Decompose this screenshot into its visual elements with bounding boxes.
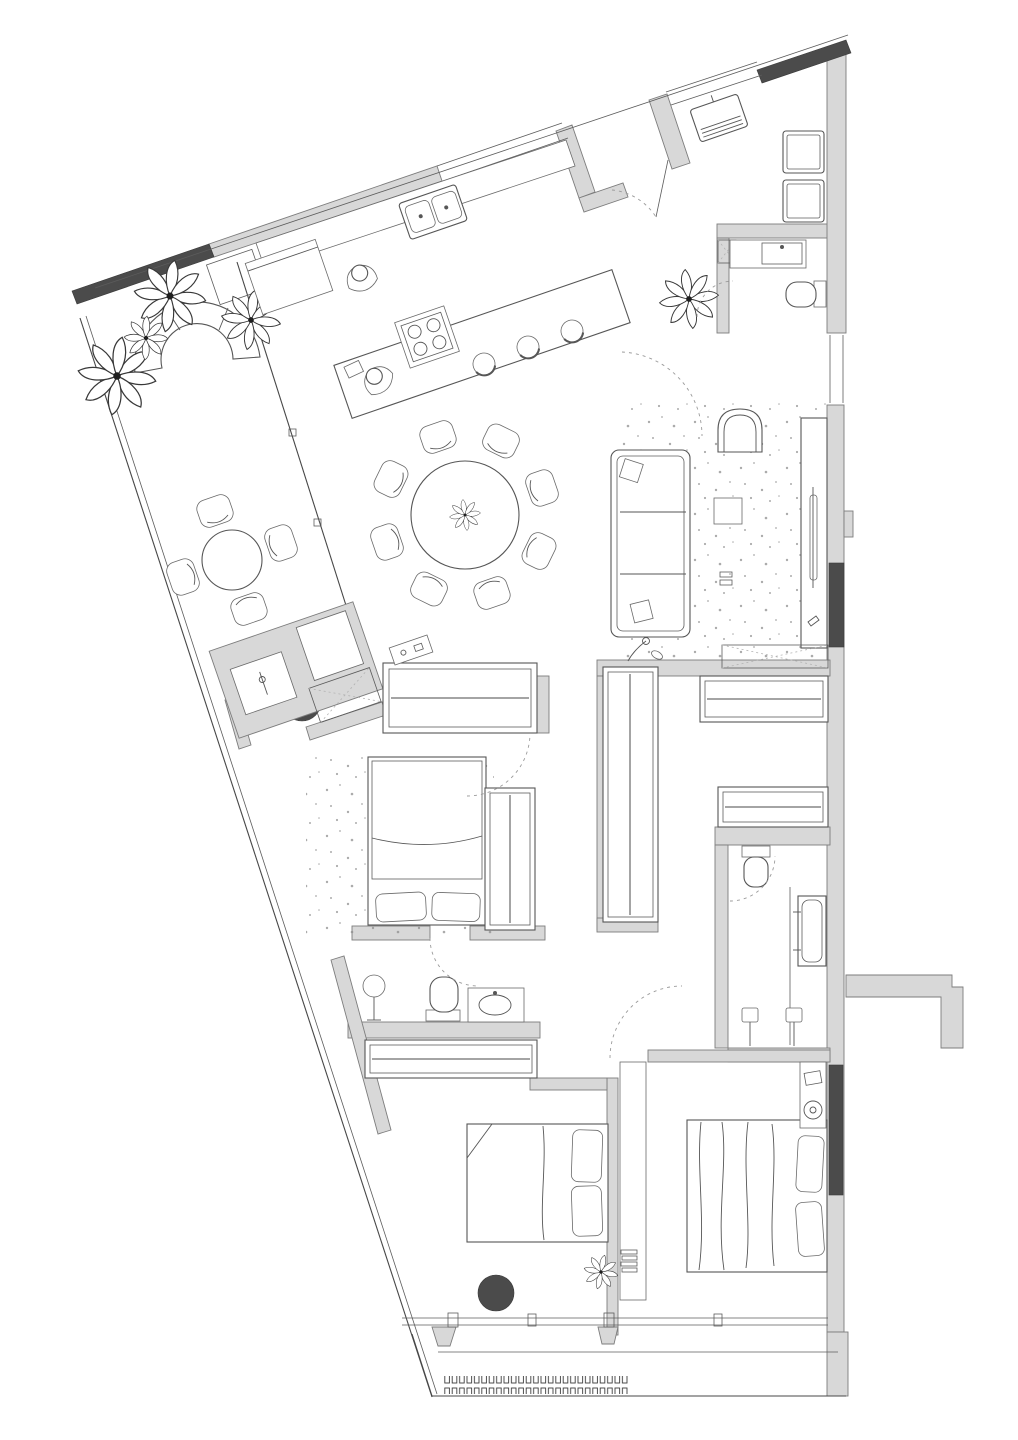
pillow — [795, 1201, 825, 1257]
nightstand — [800, 1062, 826, 1128]
decking-strip — [444, 1376, 628, 1394]
dining-chair — [368, 521, 406, 562]
entry-door-leaf — [656, 160, 668, 217]
corridor-door-swing — [610, 986, 682, 1058]
wall-segment — [537, 676, 549, 733]
wall-segment — [827, 50, 846, 333]
wall-segment — [846, 975, 963, 1048]
wall-segment — [715, 827, 830, 845]
wall-segment — [648, 1050, 830, 1062]
pillow — [432, 892, 481, 922]
master-bed — [368, 757, 486, 925]
dining-chair — [417, 418, 458, 456]
tv-sideboard — [801, 418, 827, 648]
room-master — [306, 733, 535, 934]
bed2 — [467, 1124, 608, 1242]
shower-heads — [742, 1008, 802, 1046]
throw-pillow — [630, 600, 653, 623]
mullion — [528, 1314, 536, 1326]
structural-column — [478, 1275, 514, 1311]
room-balcony — [412, 1334, 846, 1396]
pillow — [571, 1129, 603, 1182]
armchair — [718, 409, 762, 452]
pillow — [571, 1185, 603, 1236]
dining-chair — [523, 467, 561, 508]
terrace-chair — [194, 492, 235, 530]
wall-segment — [827, 1332, 848, 1396]
three-seat-sofa — [611, 450, 690, 637]
dining-chair — [471, 574, 512, 612]
wall-segment — [717, 224, 830, 238]
window — [666, 62, 757, 92]
shower-stand — [363, 975, 385, 1020]
terrace-table — [202, 530, 262, 590]
wall-segment — [715, 845, 728, 1048]
room-terrace — [64, 252, 383, 738]
terrace-chair — [262, 522, 300, 563]
room-powder — [697, 240, 826, 317]
wall-segment — [607, 1078, 618, 1335]
room-living — [611, 402, 828, 668]
wardrobe-vertical — [603, 667, 658, 922]
toilet — [786, 281, 826, 307]
terrace-chair — [228, 590, 269, 628]
powder-vanity — [730, 240, 806, 268]
mullion — [714, 1314, 722, 1326]
wall-console — [688, 87, 749, 142]
wall-segment — [649, 94, 690, 169]
dining-chair — [408, 569, 451, 609]
terrace-chair — [164, 556, 202, 597]
wardrobe-bath — [365, 1040, 537, 1078]
dark-wall-segment — [829, 1065, 843, 1195]
room-midbath — [363, 938, 537, 1078]
toilet — [742, 846, 770, 887]
washer-dryer-stack — [783, 131, 824, 222]
wardrobe-hall — [383, 663, 537, 733]
wall-segment — [844, 511, 853, 537]
wall-segment — [348, 1022, 540, 1038]
toilet — [426, 977, 460, 1021]
dining-chair — [371, 458, 411, 501]
switch-panel — [389, 635, 433, 665]
tv — [810, 495, 817, 580]
pillow — [796, 1135, 825, 1192]
dining-chair — [480, 421, 523, 461]
person-standing — [343, 261, 380, 295]
mullion-bracket — [598, 1327, 618, 1344]
room-bedroom3 — [687, 1062, 827, 1272]
side-table — [714, 498, 742, 524]
dining-chair — [519, 530, 559, 573]
floor-plan-svg — [0, 0, 1018, 1440]
wall-segment — [530, 1078, 607, 1090]
mullion-bracket — [432, 1327, 456, 1346]
bathtub — [793, 896, 826, 966]
kitchen-island — [334, 270, 630, 419]
pillow — [375, 892, 426, 923]
room-dining — [368, 418, 561, 612]
plant-icon — [660, 270, 719, 329]
wardrobe-master — [485, 788, 535, 930]
room-mainbath — [730, 846, 826, 1046]
bed3 — [687, 1120, 827, 1272]
shelf-unit — [620, 1062, 646, 1300]
floor-plan-page — [0, 0, 1018, 1440]
dark-wall-segment — [829, 563, 844, 647]
wardrobe-mid-right — [718, 787, 828, 827]
room-bedroom2 — [467, 1062, 646, 1300]
wardrobe-top-right — [700, 676, 828, 722]
vanity-basin — [468, 988, 524, 1022]
